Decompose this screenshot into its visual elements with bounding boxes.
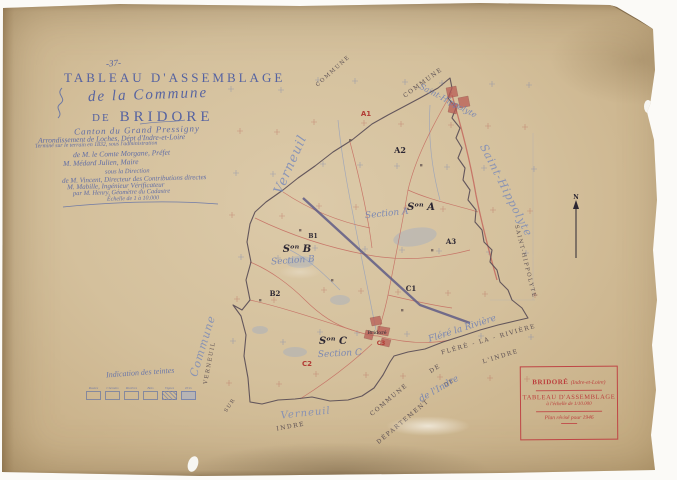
stamp-divider: [536, 411, 602, 412]
grid-cross: [234, 296, 240, 302]
grid-cross: [237, 128, 243, 134]
grid-cross: [229, 212, 235, 218]
grid-cross: [522, 124, 528, 130]
grid-cross: [311, 119, 317, 125]
grid-cross: [317, 329, 323, 335]
stamp-commune-line: BRIDORÉ (Indre-et-Loire): [521, 378, 617, 387]
grid-cross: [316, 203, 322, 209]
tint-swatch-box: [124, 391, 139, 400]
north-arrow: [573, 200, 579, 258]
grid-cross: [490, 207, 496, 213]
grid-cross: [448, 122, 454, 128]
grid-cross: [400, 373, 406, 379]
map-label: Saint-Hippolyte: [477, 142, 535, 239]
grid-cross: [230, 338, 236, 344]
tint-swatch-box: [181, 391, 196, 400]
grid-cross: [280, 339, 286, 345]
map-label: A2: [393, 145, 406, 155]
tint-swatch: Chemins: [105, 386, 120, 400]
grid-cross: [274, 129, 280, 135]
commune-boundary: [233, 78, 528, 404]
map-label: Bridoré: [367, 329, 386, 336]
grid-cross: [321, 287, 327, 293]
corner-fold: [612, 4, 652, 28]
grid-cross: [394, 163, 400, 169]
map-label: Sᵒⁿ A: [407, 202, 435, 213]
tint-swatch: Bois: [143, 386, 158, 400]
stamp-revision: Plan révisé pour 1946: [521, 415, 617, 422]
grid-cross: [270, 171, 276, 177]
map-label: Sᵒⁿ C: [319, 336, 347, 347]
grid-cross: [233, 170, 239, 176]
map-label: C2: [302, 360, 312, 368]
grid-cross: [437, 374, 443, 380]
tint-swatch-label: Rivières: [124, 386, 139, 391]
map-label: B1: [308, 233, 317, 240]
tint-swatch-label: Bois: [143, 386, 158, 391]
grid-cross: [398, 121, 404, 127]
stamp-underline: [561, 423, 577, 424]
map-label: N: [573, 194, 579, 201]
map-label: DE: [428, 363, 442, 375]
map-label: C3: [377, 340, 386, 347]
map-label: Sᵒⁿ B: [283, 244, 311, 255]
grid-cross: [278, 87, 284, 93]
grid-cross: [404, 331, 410, 337]
map-label: A1: [361, 110, 371, 118]
grid-cross: [527, 208, 533, 214]
stamp-title: TABLEAU D'ASSEMBLAGE: [521, 394, 617, 402]
map-label: COMMUNE: [315, 54, 352, 88]
tint-swatch-label: Prés: [181, 386, 196, 391]
grid-cross: [276, 381, 282, 387]
tint-swatch-box: [143, 391, 158, 400]
map-label: C1: [406, 284, 417, 293]
grid-cross: [482, 291, 488, 297]
tint-swatches: RoutesCheminsRivièresBoisVignesPrés: [86, 386, 196, 400]
tint-swatch: Vignes: [162, 386, 177, 400]
grid-cross: [395, 289, 401, 295]
title-flourishes: [58, 88, 218, 207]
grid-cross: [487, 375, 493, 381]
stamp-department: (Indre-et-Loire): [571, 380, 606, 386]
grid-cross: [399, 247, 405, 253]
grid-cross: [481, 165, 487, 171]
grid-cross: [489, 81, 495, 87]
grid-cross: [352, 78, 358, 84]
tint-swatch: Prés: [181, 386, 196, 400]
grid-cross: [226, 380, 232, 386]
grid-cross: [362, 246, 368, 252]
grid-cross: [526, 82, 532, 88]
grid-cross: [440, 206, 446, 212]
grid-cross: [444, 164, 450, 170]
grid-cross: [531, 166, 537, 172]
tint-swatch: Rivières: [124, 386, 139, 400]
grid-cross: [402, 79, 408, 85]
tint-swatch-box: [86, 391, 101, 400]
tint-swatch-label: Vignes: [162, 386, 177, 391]
map-label: de l'Indre: [417, 374, 460, 405]
grid-cross: [445, 290, 451, 296]
grid-cross: [228, 86, 234, 92]
stamp-scale: à l'échelle de 1/10.000: [521, 402, 617, 408]
grid-cross: [357, 162, 363, 168]
stamp-divider: [536, 390, 602, 391]
grid-cross: [528, 334, 534, 340]
grid-cross: [238, 254, 244, 260]
paper-chip: [644, 100, 652, 113]
tint-swatch-label: Routes: [86, 386, 101, 391]
grid-cross: [312, 245, 318, 251]
grid-cross: [436, 248, 442, 254]
grid-cross: [353, 204, 359, 210]
grid-cross: [363, 372, 369, 378]
map-label: Verneuil: [271, 133, 310, 197]
grid-cross: [361, 120, 367, 126]
stamp-commune-name: BRIDORÉ: [532, 378, 568, 386]
grid-cross: [358, 288, 364, 294]
map-label: A3: [445, 237, 456, 246]
map-label: L'INDRE: [482, 348, 520, 366]
grid-cross: [485, 123, 491, 129]
map-label: INDRE: [276, 421, 306, 433]
tint-swatch: Routes: [86, 386, 101, 400]
grid-cross: [279, 213, 285, 219]
revision-stamp-box: BRIDORÉ (Indre-et-Loire) TABLEAU D'ASSEM…: [520, 366, 619, 441]
map-label: SUR: [223, 397, 237, 413]
scanned-cadastral-sheet: -37- TABLEAU D'ASSEMBLAGE de la Commune …: [0, 0, 677, 480]
grid-cross: [313, 371, 319, 377]
tint-swatch-box: [162, 391, 177, 400]
map-label: Verneuil: [280, 405, 331, 421]
map-label: B2: [270, 289, 281, 298]
tint-swatch-box: [105, 391, 120, 400]
tint-swatch-label: Chemins: [105, 386, 120, 391]
paper-sheet: -37- TABLEAU D'ASSEMBLAGE de la Commune …: [0, 0, 677, 480]
